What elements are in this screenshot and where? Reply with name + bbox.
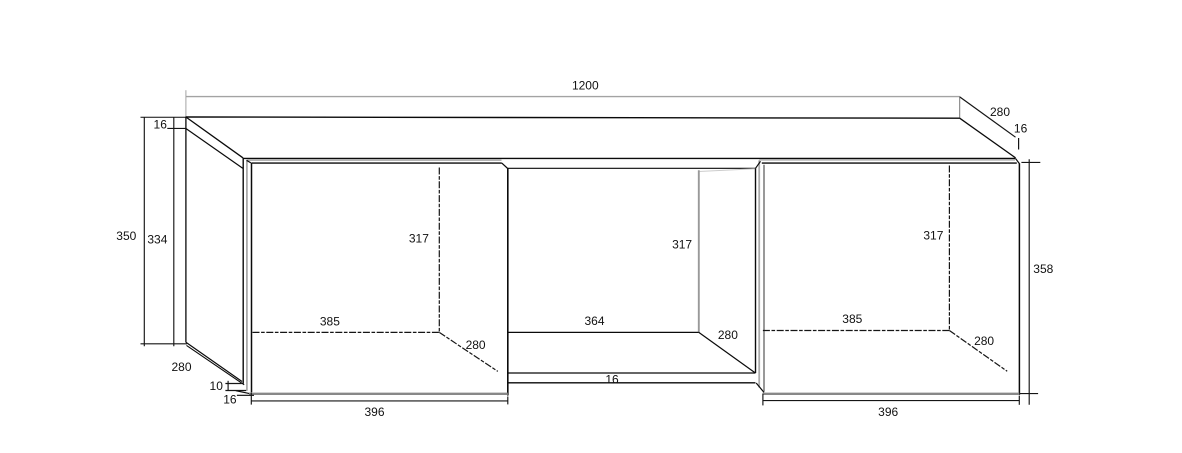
svg-text:317: 317: [672, 237, 692, 251]
svg-text:385: 385: [842, 312, 862, 326]
svg-text:280: 280: [466, 338, 486, 352]
svg-text:16: 16: [1014, 122, 1028, 136]
svg-text:385: 385: [320, 314, 340, 328]
svg-text:280: 280: [718, 328, 738, 342]
svg-text:350: 350: [116, 229, 136, 243]
svg-text:16: 16: [154, 117, 168, 131]
svg-text:280: 280: [171, 360, 191, 374]
svg-text:280: 280: [974, 334, 994, 348]
svg-text:396: 396: [364, 405, 384, 419]
svg-text:1200: 1200: [572, 78, 599, 92]
svg-text:364: 364: [584, 314, 604, 328]
svg-text:10: 10: [210, 379, 224, 393]
svg-text:317: 317: [923, 229, 943, 243]
svg-text:16: 16: [223, 392, 237, 406]
svg-text:317: 317: [409, 231, 429, 245]
svg-text:280: 280: [990, 105, 1010, 119]
svg-text:396: 396: [878, 405, 898, 419]
svg-text:358: 358: [1033, 262, 1053, 276]
svg-text:16: 16: [605, 372, 619, 386]
svg-text:334: 334: [147, 232, 167, 246]
